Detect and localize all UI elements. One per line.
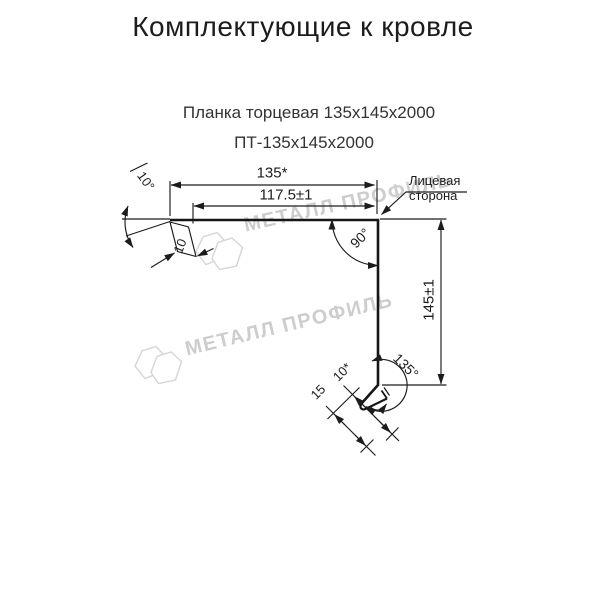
dim-tick-3 <box>361 440 374 453</box>
angle-10-tick <box>130 163 148 172</box>
hem10-arrow-right <box>198 249 214 257</box>
arc-90deg <box>332 220 378 266</box>
extension-lines <box>122 163 447 456</box>
top-kick-line <box>126 222 170 237</box>
top-hem-outline <box>170 222 196 257</box>
dim10b-arrow-down <box>380 422 391 433</box>
profile-drawing <box>0 0 600 600</box>
face-leader-line <box>382 192 468 215</box>
hem10-arrow-left <box>151 253 175 268</box>
drawing-page: МЕТАЛЛ ПРОФИЛЬ МЕТАЛЛ ПРОФИЛЬ <box>0 0 600 600</box>
profile-outline <box>170 220 390 409</box>
dim15-arrow-down <box>355 435 366 446</box>
arc-10deg <box>125 206 133 248</box>
dim-tick-1 <box>328 388 360 420</box>
dim15-arrow-up <box>335 415 346 426</box>
